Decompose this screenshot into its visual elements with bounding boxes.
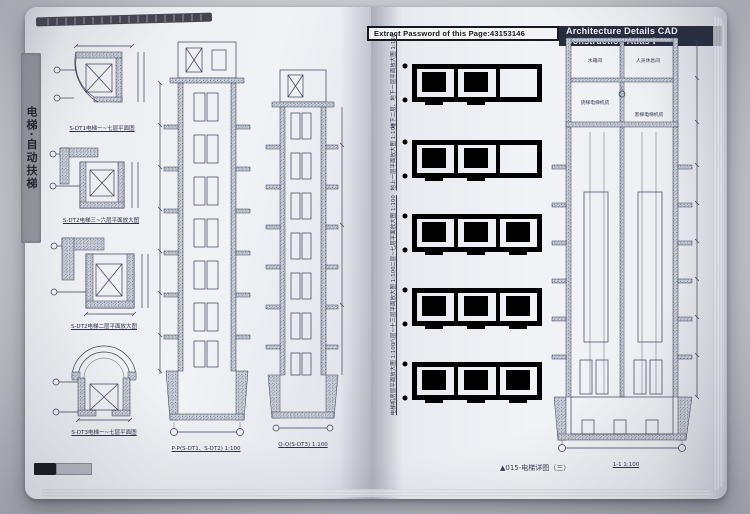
section-pp-caption: P-P(S-DT1、S-DT2) 1:100 [150, 446, 262, 453]
strip-plan-8-13: 八层~十三层平面放大图 1:100 [398, 274, 548, 337]
strip-plan-basement: 地下二层、地下一层平面放大图 1:100 [398, 50, 548, 113]
plan-sdt3-svg [48, 336, 160, 424]
plan-sdt1-svg [46, 40, 158, 120]
strip-machine-svg [398, 348, 548, 406]
page-edge-right [713, 16, 724, 490]
book-photo: 电梯·自动扶梯 S-DT1电梯一~七层平面图 [0, 0, 750, 514]
plan-sdt2-lower-caption: S-DT2电梯二层平面放大图 [44, 324, 164, 331]
section-drawing-pp: P-P(S-DT1、S-DT2) 1:100 [150, 34, 262, 453]
room-label-freight-machine-room: 货梯电梯机房 [581, 99, 610, 106]
page-footer-label: ▲015-电梯详图（三） [500, 463, 570, 473]
section-1-1-svg: 水箱间 人员休息间 货梯电梯机房 客梯电梯机房 [550, 32, 702, 456]
page-edge-bottom [42, 489, 710, 497]
plan-sdt3-caption: S-DT3电梯一~七层平面图 [48, 430, 160, 437]
category-tab-label: 电梯·自动扶梯 [23, 106, 39, 190]
strip-2-7-svg [398, 200, 548, 258]
category-tab: 电梯·自动扶梯 [21, 53, 41, 243]
section-1-1-caption: 1-1 1:100 [550, 462, 702, 469]
strip-plan-2-7: 二层~七层平面放大图 1:100 [398, 200, 548, 263]
page-footer-text: ▲015-电梯详图（三） [500, 464, 570, 472]
section-drawing-1-1: 水箱间 人员休息间 货梯电梯机房 客梯电梯机房 [550, 32, 702, 469]
section-drawing-qq: Q-Q(S-DT3) 1:100 [258, 64, 348, 449]
plan-drawing-sdt2-lower: S-DT2电梯二层平面放大图 [44, 228, 164, 331]
strip-plan-machine-room: 电梯机房层平面放大图 1:100 [398, 348, 548, 411]
strip-8-13-svg [398, 274, 548, 332]
strip-ground-svg [398, 126, 548, 184]
strip-basement-svg [398, 50, 548, 108]
section-pp-svg [150, 34, 262, 440]
plan-sdt1-caption: S-DT1电梯一~七层平面图 [46, 126, 158, 133]
page-number-badge-dark [34, 463, 56, 475]
plan-drawing-sdt3: S-DT3电梯一~七层平面图 [48, 336, 160, 437]
section-qq-caption: Q-Q(S-DT3) 1:100 [258, 442, 348, 449]
plan-sdt2-upper-svg [44, 136, 158, 212]
plan-drawing-sdt1: S-DT1电梯一~七层平面图 [46, 40, 158, 133]
strip-machine-caption: 电梯机房层平面放大图 1:100 [389, 324, 397, 434]
plan-sdt2-upper-caption: S-DT2电梯三~六层平面放大图 [44, 218, 158, 225]
room-label-passenger-machine-room: 客梯电梯机房 [635, 111, 664, 118]
room-label-water-tank: 水箱间 [588, 57, 603, 64]
plan-sdt2-lower-svg [44, 228, 164, 318]
strip-plan-ground: 地上一层平面放大图 1:100 [398, 126, 548, 189]
section-qq-svg [258, 64, 348, 436]
page-number-badge [34, 463, 92, 475]
room-label-rest-room: 人员休息间 [636, 57, 660, 64]
plan-drawing-sdt2-upper: S-DT2电梯三~六层平面放大图 [44, 136, 158, 225]
page-number-badge-light [56, 463, 92, 475]
